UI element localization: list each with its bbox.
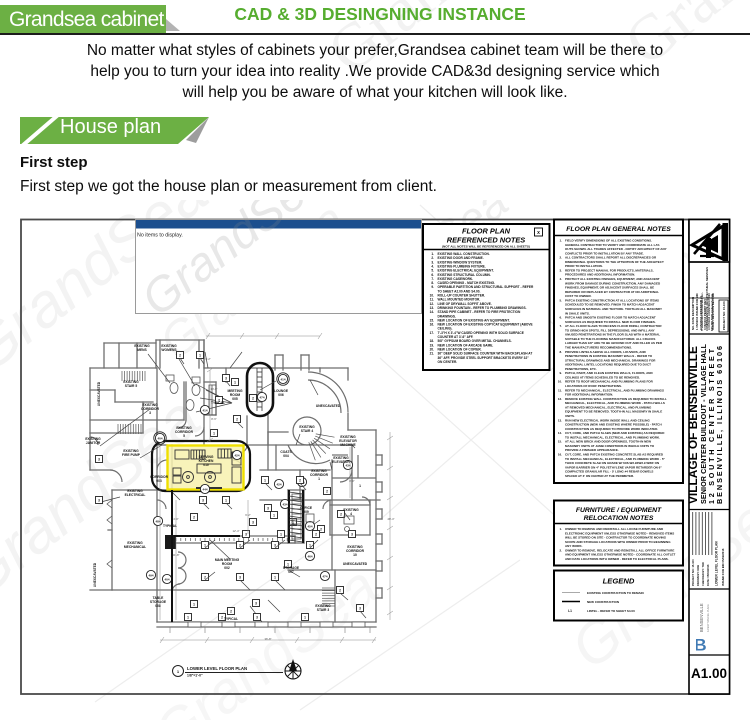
svg-text:CHECKED BY: TRD: CHECKED BY: TRD (701, 562, 705, 586)
svg-text:2: 2 (239, 544, 241, 548)
svg-text:1: 1 (225, 499, 227, 503)
svg-text:L1: L1 (568, 609, 572, 613)
svg-text:LOCATIONS OF ROOF PENETRATIONS: LOCATIONS OF ROOF PENETRATIONS. (565, 384, 622, 388)
svg-text:PROTECT ALL EXISTING FINISHES,: PROTECT ALL EXISTING FINISHES, EQUIPMENT… (565, 277, 660, 281)
svg-text:3: 3 (359, 607, 361, 611)
svg-text:TYPICAL: TYPICAL (224, 617, 238, 621)
svg-text:EXISTING: EXISTING (176, 426, 192, 430)
svg-text:DRAWINGS.: DRAWINGS. (438, 314, 457, 318)
svg-text:IN SHALE UNITS.: IN SHALE UNITS. (565, 311, 590, 315)
svg-text:14'-0": 14'-0" (210, 387, 217, 391)
svg-text:NO. DATE DESCRIPTION: NO. DATE DESCRIPTION (691, 297, 695, 330)
svg-text:5.: 5. (431, 269, 434, 273)
svg-text:4: 4 (350, 512, 352, 516)
svg-text:ADDITIONAL LINTEL LOCATIONS RE: ADDITIONAL LINTEL LOCATIONS REQUIRED DUE… (565, 363, 651, 367)
svg-text:EXISTING WINDOW SYSTEM.: EXISTING WINDOW SYSTEM. (438, 260, 483, 264)
svg-text:EQUIPMENT TO BE REMOVED. TOOTH: EQUIPMENT TO BE REMOVED. TOOTH-IN ALL MA… (565, 410, 662, 414)
svg-text:1: 1 (273, 514, 275, 518)
svg-text:414: 414 (280, 377, 285, 381)
svg-text:RELOCATION NOTES: RELOCATION NOTES (584, 515, 654, 522)
svg-text:EXISTING WALL CONSTRUCTION.: EXISTING WALL CONSTRUCTION. (438, 252, 490, 256)
svg-text:JANITOR: JANITOR (86, 441, 101, 445)
svg-text:NEW LOCATION OF ARCADE GAME.: NEW LOCATION OF ARCADE GAME. (438, 343, 494, 347)
svg-text:REPAIRED OR REPLACED BY CONTRA: REPAIRED OR REPLACED BY CONTRACTOR AT NO… (565, 290, 659, 294)
svg-text:MAIN MEETING: MAIN MEETING (215, 558, 240, 562)
svg-text:630.359.5009 tradearch.com: 630.359.5009 tradearch.com (710, 293, 714, 331)
svg-text:WORK FROM DAMAGE DURING CONSTR: WORK FROM DAMAGE DURING CONSTRUCTION. AN… (565, 281, 661, 285)
svg-text:7.: 7. (559, 324, 562, 328)
svg-text:SCHEDULED TO BE REMOVED. FINIS: SCHEDULED TO BE REMOVED. FINISH TO MATCH… (565, 303, 655, 307)
svg-text:3: 3 (274, 544, 276, 548)
svg-text:LARGER THAN 1/8" ARE TO BE GRO: LARGER THAN 1/8" ARE TO BE GROUND OUT AN… (565, 341, 663, 345)
svg-text:3: 3 (351, 533, 353, 537)
svg-text:THE MANUFACTURERS RECOMMENDATI: THE MANUFACTURERS RECOMMENDATIONS. (565, 346, 632, 350)
svg-text:2: 2 (221, 616, 223, 620)
svg-text:4.: 4. (431, 264, 434, 268)
svg-text:005: 005 (232, 397, 238, 401)
svg-text:REMOVE EXISTING WALL CONSTRUCT: REMOVE EXISTING WALL CONSTRUCTION AS REQ… (565, 397, 667, 401)
svg-text:17.: 17. (430, 331, 435, 335)
svg-text:006: 006 (278, 393, 284, 397)
svg-text:MENS: MENS (137, 348, 147, 352)
svg-text:2: 2 (326, 490, 328, 494)
svg-text:FIELD VERIFY DIMENSIONS OF ALL: FIELD VERIFY DIMENSIONS OF ALL EXISTING … (565, 239, 652, 243)
svg-text:No items to display.: No items to display. (137, 233, 183, 239)
svg-text:PROCEDURES AND ADDITIONAL INFO: PROCEDURES AND ADDITIONAL INFORMATION. (565, 273, 635, 277)
svg-text:6.: 6. (431, 273, 434, 277)
svg-text:WILL BE STORED ON SITE - CONTR: WILL BE STORED ON SITE - CONTRACTOR TO C… (565, 536, 667, 540)
svg-text:36" DEEP SOLID SURFACE COUNTER: 36" DEEP SOLID SURFACE COUNTER WITH BACK… (438, 352, 533, 356)
svg-text:REFER TO MECHANICAL, ELECTRICA: REFER TO MECHANICAL, ELECTRICAL, AND PLU… (565, 388, 664, 392)
svg-text:1: 1 (199, 354, 201, 358)
svg-text:424: 424 (276, 482, 281, 486)
svg-text:WOMENS: WOMENS (161, 348, 177, 352)
svg-text:FOR ADDITIONAL INFORMATION.: FOR ADDITIONAL INFORMATION. (565, 393, 613, 397)
svg-text:GrandSea: GrandSea (0, 383, 213, 611)
svg-text:PROVIDE LINTELS ABOVE ALL DOOR: PROVIDE LINTELS ABOVE ALL DOORS, LOUVERS… (565, 350, 647, 354)
svg-text:2: 2 (179, 354, 181, 358)
svg-text:2: 2 (204, 576, 206, 580)
svg-text:1.: 1. (431, 252, 434, 256)
svg-text:NEW CONSTRUCTION: NEW CONSTRUCTION (587, 600, 619, 604)
svg-text:EXISTING DOOR AND FRAME.: EXISTING DOOR AND FRAME. (438, 256, 484, 260)
svg-text:CORRIDOR: CORRIDOR (150, 475, 169, 479)
svg-text:LINTEL - REFER TO SHEET S4.00: LINTEL - REFER TO SHEET S4.00 (587, 609, 635, 613)
svg-text:8.: 8. (431, 281, 434, 285)
svg-text:13.: 13. (430, 306, 435, 310)
svg-text:STAIR 4: STAIR 4 (301, 429, 314, 433)
svg-text:EXISTING: EXISTING (134, 344, 150, 348)
svg-text:CONSTRUCTION AS REQUIRED TO PR: CONSTRUCTION AS REQUIRED TO PROVIDE WORK… (565, 427, 658, 431)
svg-text:STRUCTURAL DRAWINGS AND MECHAN: STRUCTURAL DRAWINGS AND MECHANICAL DRAWI… (565, 358, 656, 362)
svg-text:1: 1 (318, 477, 320, 481)
svg-text:ELECTRICAL: ELECTRICAL (125, 493, 146, 497)
svg-text:EXISTING: EXISTING (142, 403, 158, 407)
svg-text:ROOM: ROOM (222, 562, 233, 566)
svg-text:EXISTING: EXISTING (127, 489, 143, 493)
svg-text:2.: 2. (559, 548, 562, 552)
svg-text:FURNITURE / EQUIPMENT: FURNITURE / EQUIPMENT (576, 507, 662, 514)
svg-text:3: 3 (245, 533, 247, 537)
svg-text:FLOOR PLAN GENERAL NOTES: FLOOR PLAN GENERAL NOTES (566, 226, 671, 233)
svg-text:1.: 1. (559, 527, 562, 531)
svg-text:SURFACES AS REQUIRED TO INSTAL: SURFACES AS REQUIRED TO INSTALL NEW FLOO… (565, 320, 656, 324)
svg-text:7.: 7. (431, 277, 434, 281)
svg-text:PROJECT NO: 15-103: PROJECT NO: 15-103 (722, 301, 726, 330)
svg-text:2: 2 (252, 397, 254, 401)
svg-text:EXISTING: EXISTING (333, 456, 349, 460)
svg-text:EXISTING STRUCTURAL COLUMN.: EXISTING STRUCTURAL COLUMN. (438, 273, 491, 277)
svg-text:424: 424 (234, 453, 239, 457)
svg-text:3: 3 (239, 576, 241, 580)
svg-text:1.: 1. (559, 239, 562, 243)
svg-text:UNUSED PENETRATIONS IN THE FLO: UNUSED PENETRATIONS IN THE FLOOR SLAB WI… (565, 333, 660, 337)
svg-text:494: 494 (148, 573, 153, 577)
svg-text:1: 1 (187, 616, 189, 620)
svg-text:REFER TO ROOF MECHANICAL AND P: REFER TO ROOF MECHANICAL AND PLUMBING PL… (565, 380, 654, 384)
svg-text:CORRIDOR: CORRIDOR (346, 549, 365, 553)
svg-text:3: 3 (149, 411, 151, 415)
svg-text:2: 2 (315, 533, 317, 537)
svg-text:1: 1 (264, 479, 266, 483)
svg-text:FLOOR PLAN: FLOOR PLAN (462, 227, 511, 236)
svg-text:REFER TO PROJECT MANUAL FOR PR: REFER TO PROJECT MANUAL FOR PRODUCTS, MA… (565, 268, 654, 272)
svg-text:36'-8": 36'-8" (264, 637, 271, 641)
svg-text:EXISTING: EXISTING (340, 435, 356, 439)
svg-text:18.: 18. (430, 339, 435, 343)
svg-text:A VERY SPECIAL PLACE: A VERY SPECIAL PLACE (707, 604, 710, 632)
svg-text:MECHANICAL, ELECTRICAL, AND PL: MECHANICAL, ELECTRICAL, AND PLUMBING WOR… (565, 401, 665, 405)
svg-text:EXISTING: EXISTING (347, 545, 363, 549)
svg-text:AT ALL FLOOR SLABS TO RECEIVE: AT ALL FLOOR SLABS TO RECEIVE FLOOR FINI… (565, 324, 662, 328)
svg-text:PROVIDE A FINISHED APPEARANCE.: PROVIDE A FINISHED APPEARANCE. (565, 448, 619, 452)
svg-text:434: 434 (282, 502, 287, 506)
svg-text:MASONRY UNITS AT JAMB CONDITIO: MASONRY UNITS AT JAMB CONDITIONS IN WHOL… (565, 444, 655, 448)
svg-text:PROJECT NO: 15-103: PROJECT NO: 15-103 (691, 559, 695, 586)
svg-text:LEGEND: LEGEND (603, 577, 635, 586)
svg-text:STAND PIPE CABINET - REFER TO: STAND PIPE CABINET - REFER TO FIRE PROTE… (438, 310, 521, 314)
svg-text:FINISHES, EQUIPMENT, OR ADJACE: FINISHES, EQUIPMENT, OR ADJACENT SURFACE… (565, 286, 654, 290)
svg-text:12'-4": 12'-4" (232, 529, 239, 533)
svg-text:NEW LOCATION OF EXISTING COPYC: NEW LOCATION OF EXISTING COPYCAT EQUIPME… (438, 323, 533, 327)
svg-text:16.: 16. (558, 453, 562, 457)
svg-text:14.: 14. (430, 310, 435, 314)
svg-text:1: 1 (274, 576, 276, 580)
svg-text:STAIR 5: STAIR 5 (125, 384, 138, 388)
svg-text:12.: 12. (558, 397, 562, 401)
svg-text:ELECTRONIC EQUIPMENT UNLESS OT: ELECTRONIC EQUIPMENT UNLESS OTHERWISE NO… (565, 531, 674, 535)
svg-text:2: 2 (193, 516, 195, 520)
svg-text:2: 2 (236, 418, 238, 422)
svg-text:CASED OPENING - MATCH EXISTING: CASED OPENING - MATCH EXISTING. (438, 281, 496, 285)
svg-text:EXISTING CONSTRUCTION TO REMAI: EXISTING CONSTRUCTION TO REMAIN (587, 591, 644, 595)
svg-text:5: 5 (183, 434, 185, 438)
svg-text:AND EQUIPMENT UNLESS OTHERWISE: AND EQUIPMENT UNLESS OTHERWISE NOTED - C… (565, 553, 676, 557)
svg-text:SURFACES IN MATERIAL AND TEXTU: SURFACES IN MATERIAL AND TEXTURE. TOOTH-… (565, 307, 662, 311)
svg-text:EXISTING: EXISTING (85, 437, 101, 441)
svg-text:KITCHEN: KITCHEN (199, 459, 214, 463)
svg-text:UNEXCAVATED: UNEXCAVATED (93, 562, 97, 587)
svg-text:9.: 9. (559, 371, 562, 375)
svg-text:PENETRATIONS IN EXISTING MASON: PENETRATIONS IN EXISTING MASONRY WALLS -… (565, 354, 653, 358)
svg-text:3: 3 (255, 602, 257, 606)
svg-text:RUN NEW ELECTRICAL WORK INSIDE: RUN NEW ELECTRICAL WORK INSIDE WALL AND … (565, 418, 650, 422)
svg-text:(NOT ALL NOTES WILL BE REFEREN: (NOT ALL NOTES WILL BE REFERENCED ON ALL… (442, 244, 530, 248)
svg-text:010: 010 (203, 463, 209, 467)
svg-text:474: 474 (259, 395, 264, 399)
svg-text:DRINKING FOUNTAIN - REFER TO P: DRINKING FOUNTAIN - REFER TO PLUMBING DR… (438, 306, 527, 310)
svg-text:002: 002 (224, 566, 230, 570)
svg-text:EXISTING: EXISTING (161, 344, 177, 348)
svg-text:003: 003 (156, 479, 162, 483)
svg-text:3: 3 (202, 499, 204, 503)
svg-text:TYPICAL: TYPICAL (211, 401, 225, 405)
svg-text:3: 3 (267, 507, 269, 511)
svg-text:454: 454 (307, 524, 312, 528)
svg-text:21.: 21. (430, 352, 435, 356)
svg-text:CEILING).: CEILING). (438, 327, 453, 331)
svg-text:4.: 4. (559, 277, 562, 281)
svg-text:8.: 8. (559, 350, 562, 354)
svg-text:A1.00: A1.00 (691, 666, 727, 681)
svg-text:3.: 3. (431, 260, 434, 264)
svg-text:PENETRATIONS, ETC.: PENETRATIONS, ETC. (565, 367, 597, 371)
svg-text:404: 404 (164, 577, 169, 581)
svg-text:LOUNGE: LOUNGE (274, 389, 289, 393)
svg-text:ANY WORK.: ANY WORK. (565, 544, 583, 548)
svg-text:SCOPE AND STORAGE LOCATIONS WI: SCOPE AND STORAGE LOCATIONS WITH OWNER P… (565, 540, 671, 544)
svg-text:414: 414 (202, 408, 207, 412)
svg-text:2: 2 (339, 589, 341, 593)
svg-text:BENSENVILLE: BENSENVILLE (699, 603, 704, 632)
svg-text:GENERAL CONTRACTOR TO VERIFY A: GENERAL CONTRACTOR TO VERIFY AND COORDIN… (565, 243, 660, 247)
svg-text:LINE OF DRYWALL SOFFIT ABOVE.: LINE OF DRYWALL SOFFIT ABOVE. (438, 302, 492, 306)
svg-text:1: 1 (304, 616, 306, 620)
svg-text:TO SHEET A2.00 AND S4.00.: TO SHEET A2.00 AND S4.00. (438, 289, 481, 293)
svg-text:x: x (537, 230, 540, 236)
svg-text:1: 1 (359, 484, 361, 488)
svg-text:8'-6": 8'-6" (211, 417, 217, 421)
svg-text:PATCH AND SMOOTH EXISTING FLOO: PATCH AND SMOOTH EXISTING FLOOR TO MATCH… (565, 316, 656, 320)
svg-text:CORRIDOR: CORRIDOR (141, 407, 160, 411)
svg-text:EXISTING: EXISTING (123, 449, 139, 453)
svg-text:6'-2": 6'-2" (245, 513, 251, 517)
svg-text:1 05/02/16 ISSUED FOR BID: 1 05/02/16 ISSUED FOR BID (695, 293, 699, 330)
svg-text:1/8"=1'-0": 1/8"=1'-0" (187, 674, 203, 678)
svg-text:5 Vanderbilt Architecture Inc: 5 Vanderbilt Architecture Inc. (700, 292, 704, 331)
svg-text:004: 004 (283, 454, 289, 458)
svg-text:13.: 13. (558, 418, 562, 422)
svg-text:CEILINGS AT ITEMS SCHEDULED TO: CEILINGS AT ITEMS SCHEDULED TO BE REMOVE… (565, 375, 640, 379)
svg-text:ELEVATOR: ELEVATOR (332, 460, 350, 464)
svg-text:SUITABLE TO THE FLOORING MANUF: SUITABLE TO THE FLOORING MANUFACTURER. A… (565, 337, 655, 341)
svg-text:STORAGE: STORAGE (150, 600, 167, 604)
svg-text:36" AFF. PROVIDE STEEL SUPPORT: 36" AFF. PROVIDE STEEL SUPPORT BRACKETS … (438, 356, 530, 360)
svg-text:5.: 5. (559, 298, 562, 302)
svg-text:007: 007 (288, 570, 294, 574)
svg-text:10: 10 (353, 553, 357, 557)
svg-text:EXISTING: EXISTING (123, 380, 139, 384)
svg-text:EXISTING ELECTRICAL EQUIPMENT.: EXISTING ELECTRICAL EQUIPMENT. (438, 269, 494, 273)
svg-text:MACHINE: MACHINE (340, 443, 356, 447)
svg-text:009: 009 (303, 510, 309, 514)
svg-text:12.: 12. (430, 302, 435, 306)
svg-text:1: 1 (280, 533, 282, 537)
svg-text:3: 3 (225, 377, 227, 381)
svg-text:444: 444 (202, 487, 207, 491)
svg-text:16.: 16. (430, 323, 435, 327)
svg-text:CORRIDOR: CORRIDOR (310, 473, 329, 477)
svg-text:OUTS SHOWN. ALL TRADES AFFECTE: OUTS SHOWN. ALL TRADES AFFECTED - NOTIFY… (565, 247, 667, 251)
svg-text:EXISTING: EXISTING (311, 469, 327, 473)
svg-text:COUNTER AT 3'-6" AFF.: COUNTER AT 3'-6" AFF. (438, 335, 474, 339)
svg-text:28'-4": 28'-4" (387, 517, 394, 521)
svg-text:SERVING: SERVING (199, 455, 214, 459)
svg-text:FIRE PUMP: FIRE PUMP (122, 453, 141, 457)
svg-text:21'-8": 21'-8" (172, 553, 179, 557)
svg-text:TABLE: TABLE (153, 596, 165, 600)
svg-text:UNEXCAVATED: UNEXCAVATED (343, 562, 368, 566)
svg-text:STAIR 3: STAIR 3 (317, 608, 330, 612)
svg-text:UNEXCAVATED: UNEXCAVATED (316, 404, 341, 408)
svg-text:OFFICE: OFFICE (300, 506, 313, 510)
svg-text:474: 474 (322, 574, 327, 578)
svg-text:EXISTING: EXISTING (343, 508, 359, 512)
svg-text:NEW LOCATION OF COPIER.: NEW LOCATION OF COPIER. (438, 347, 482, 351)
svg-text:3: 3 (98, 499, 100, 503)
svg-text:464: 464 (307, 554, 312, 558)
svg-text:1: 1 (204, 544, 206, 548)
svg-text:COMPACTED GRANULAR FILL - 5' L: COMPACTED GRANULAR FILL - 5' LONG #4 REB… (565, 470, 653, 474)
svg-text:REFERENCED NOTES: REFERENCED NOTES (447, 236, 526, 245)
svg-text:CUT, CORE, AND PATCH SLABS (NE: CUT, CORE, AND PATCH SLABS (NEW AND EXIS… (565, 431, 665, 435)
svg-text:1: 1 (213, 432, 215, 436)
svg-text:DRAWN BY: MJB: DRAWN BY: MJB (696, 565, 700, 586)
svg-text:ISSUED FOR BID 05/02/2016: ISSUED FOR BID 05/02/2016 (721, 548, 725, 586)
svg-text:10.: 10. (430, 294, 435, 298)
svg-text:PRIOR TO INSTALLATION.: PRIOR TO INSTALLATION. (565, 264, 603, 268)
svg-text:UNITS.: UNITS. (565, 414, 575, 418)
svg-text:8'-0": 8'-0" (349, 479, 355, 483)
svg-text:SPACED AT 3' ON CENTER AT THE: SPACED AT 3' ON CENTER AT THE PERIMETER. (565, 474, 634, 478)
svg-text:CONFLICTS PRIOR TO INSTALLATIO: CONFLICTS PRIOR TO INSTALLATION BY ANY T… (565, 251, 644, 255)
svg-text:MECHANICAL: MECHANICAL (124, 545, 146, 549)
svg-text:COATS: COATS (280, 450, 292, 454)
svg-text:LOWER LEVEL FLOOR PLAN: LOWER LEVEL FLOOR PLAN (187, 666, 247, 671)
svg-text:14.: 14. (558, 431, 562, 435)
svg-text:TO INSTALL MECHANICAL, ELECTRI: TO INSTALL MECHANICAL, ELECTRICAL, AND P… (565, 435, 660, 439)
svg-text:LOWER LEVEL FLOOR PLAN: LOWER LEVEL FLOOR PLAN (715, 541, 719, 586)
svg-text:OWNER TO REMOVE AND REINSTALL: OWNER TO REMOVE AND REINSTALL ALL LOOSE … (565, 527, 664, 531)
svg-text:EXISTING PLUMBING FIXTURE.: EXISTING PLUMBING FIXTURE. (438, 264, 486, 268)
svg-text:3: 3 (256, 616, 258, 620)
svg-text:2: 2 (230, 610, 232, 614)
svg-text:ON CENTER.: ON CENTER. (438, 360, 458, 364)
svg-text:5/8" GYPSUM BOARD OVER METAL C: 5/8" GYPSUM BOARD OVER METAL CHANNELS. (438, 339, 512, 343)
svg-text:CORRIDOR: CORRIDOR (175, 430, 194, 434)
svg-text:TO INSTALL MECHANICAL, ELECTRI: TO INSTALL MECHANICAL, ELECTRICAL, AND P… (565, 457, 666, 461)
svg-text:DATE: 05/02/2016: DATE: 05/02/2016 (706, 564, 710, 586)
svg-text:1: 1 (234, 381, 236, 385)
svg-text:7'-3"H X 3'-4"W CASED OPENING: 7'-3"H X 3'-4"W CASED OPENING WITH SOLID… (438, 331, 524, 335)
svg-text:EXISTING: EXISTING (315, 604, 331, 608)
svg-text:1: 1 (193, 603, 195, 607)
svg-text:COST TO OWNER.: COST TO OWNER. (565, 294, 592, 298)
svg-text:4'-0": 4'-0" (173, 517, 179, 521)
svg-text:ALL CONTRACTORS SHALL REPORT A: ALL CONTRACTORS SHALL REPORT ALL DISCREP… (565, 256, 657, 260)
svg-text:AT REMOVED MECHANICAL, ELECTRI: AT REMOVED MECHANICAL, ELECTRICAL, AND P… (565, 405, 652, 409)
svg-text:6.: 6. (559, 316, 562, 320)
svg-text:2: 2 (320, 528, 322, 532)
svg-text:2.: 2. (559, 256, 562, 260)
svg-text:ELEVATOR: ELEVATOR (339, 439, 357, 443)
svg-text:2: 2 (299, 479, 301, 483)
svg-text:11.: 11. (430, 298, 434, 302)
svg-text:TYPICAL: TYPICAL (163, 524, 177, 528)
svg-text:EXISTING: EXISTING (127, 541, 143, 545)
svg-text:15.: 15. (558, 440, 562, 444)
svg-text:20.: 20. (430, 347, 435, 351)
svg-text:9'-2": 9'-2" (205, 357, 211, 361)
svg-text:15.: 15. (430, 318, 435, 322)
svg-text:CUT, CORE, AND PATCH EXISTING: CUT, CORE, AND PATCH EXISTING CONCRETE S… (565, 453, 664, 457)
svg-text:9.: 9. (431, 285, 434, 289)
svg-text:1: 1 (177, 669, 180, 674)
svg-text:404: 404 (157, 436, 162, 440)
svg-text:DIMENSIONAL QUESTIONS TO THE A: DIMENSIONAL QUESTIONS TO THE ATTENTION O… (565, 260, 664, 264)
svg-text:3: 3 (252, 521, 254, 525)
svg-text:10.: 10. (558, 380, 562, 384)
svg-text:MEETING: MEETING (227, 389, 242, 393)
svg-text:EXISTING CASEWORK.: EXISTING CASEWORK. (438, 277, 474, 281)
svg-text:PATCH EXISTING CONSTRUCTION AT: PATCH EXISTING CONSTRUCTION AT ALL LOCAT… (565, 298, 659, 302)
svg-text:2: 2 (340, 513, 342, 517)
svg-text:ROOM: ROOM (230, 393, 241, 397)
svg-text:3.: 3. (559, 268, 562, 272)
svg-text:VILLAGE OF BENSENVILLE: VILLAGE OF BENSENVILLE (686, 346, 700, 504)
svg-text:11.: 11. (558, 388, 562, 392)
svg-text:UNEXCAVATED: UNEXCAVATED (97, 381, 101, 406)
svg-text:3: 3 (98, 458, 100, 462)
svg-text:AT ALL NEW BRICK AND DOOR OPEN: AT ALL NEW BRICK AND DOOR OPENINGS, TOOT… (565, 440, 651, 444)
svg-text:CONSTRUCTION (NEW AND EXISTING: CONSTRUCTION (NEW AND EXISTING WHERE POS… (565, 423, 662, 427)
svg-text:OPERABLE PARTITION AND STRUCTU: OPERABLE PARTITION AND STRUCTURAL SUPPOR… (438, 285, 534, 289)
svg-text:THICK CONCRETE SLAB ON GRADE W: THICK CONCRETE SLAB ON GRADE W/ 6X6-W2.9… (565, 461, 659, 465)
svg-text:COMPREHENSIVE ARCHITECTURAL SE: COMPREHENSIVE ARCHITECTURAL SERVICES (705, 267, 709, 331)
svg-text:PATCH, PAINT, AND CLEAN EXISTI: PATCH, PAINT, AND CLEAN EXISTING WALLS, … (565, 371, 653, 375)
svg-text:2.: 2. (431, 256, 434, 260)
svg-text:EXISTING: EXISTING (299, 425, 315, 429)
svg-text:TO GRIND HIGH SPOTS, FILL DEPR: TO GRIND HIGH SPOTS, FILL DEPRESSIONS, A… (565, 328, 655, 332)
svg-text:STORAGE: STORAGE (283, 566, 300, 570)
svg-text:19.: 19. (430, 343, 435, 347)
svg-text:ROLL-UP COUNTER SHUTTER.: ROLL-UP COUNTER SHUTTER. (438, 294, 486, 298)
svg-text:AND DATA LOCATIONS WITH OWNER: AND DATA LOCATIONS WITH OWNER - REFER TO… (565, 557, 669, 561)
svg-text:NEW LOCATION OF EXISTING A/V E: NEW LOCATION OF EXISTING A/V EQUIPMENT. (438, 318, 510, 322)
svg-text:OWNER TO REMOVE, RELOCATE AND: OWNER TO REMOVE, RELOCATE AND REINSTALL … (565, 548, 674, 552)
svg-text:WALL MOUNTED MONITOR.: WALL MOUNTED MONITOR. (438, 298, 481, 302)
svg-text:VAPOR BARRIER ON 4" POLYETHYLE: VAPOR BARRIER ON 4" POLYETHYLENE VAPOR R… (565, 465, 662, 469)
